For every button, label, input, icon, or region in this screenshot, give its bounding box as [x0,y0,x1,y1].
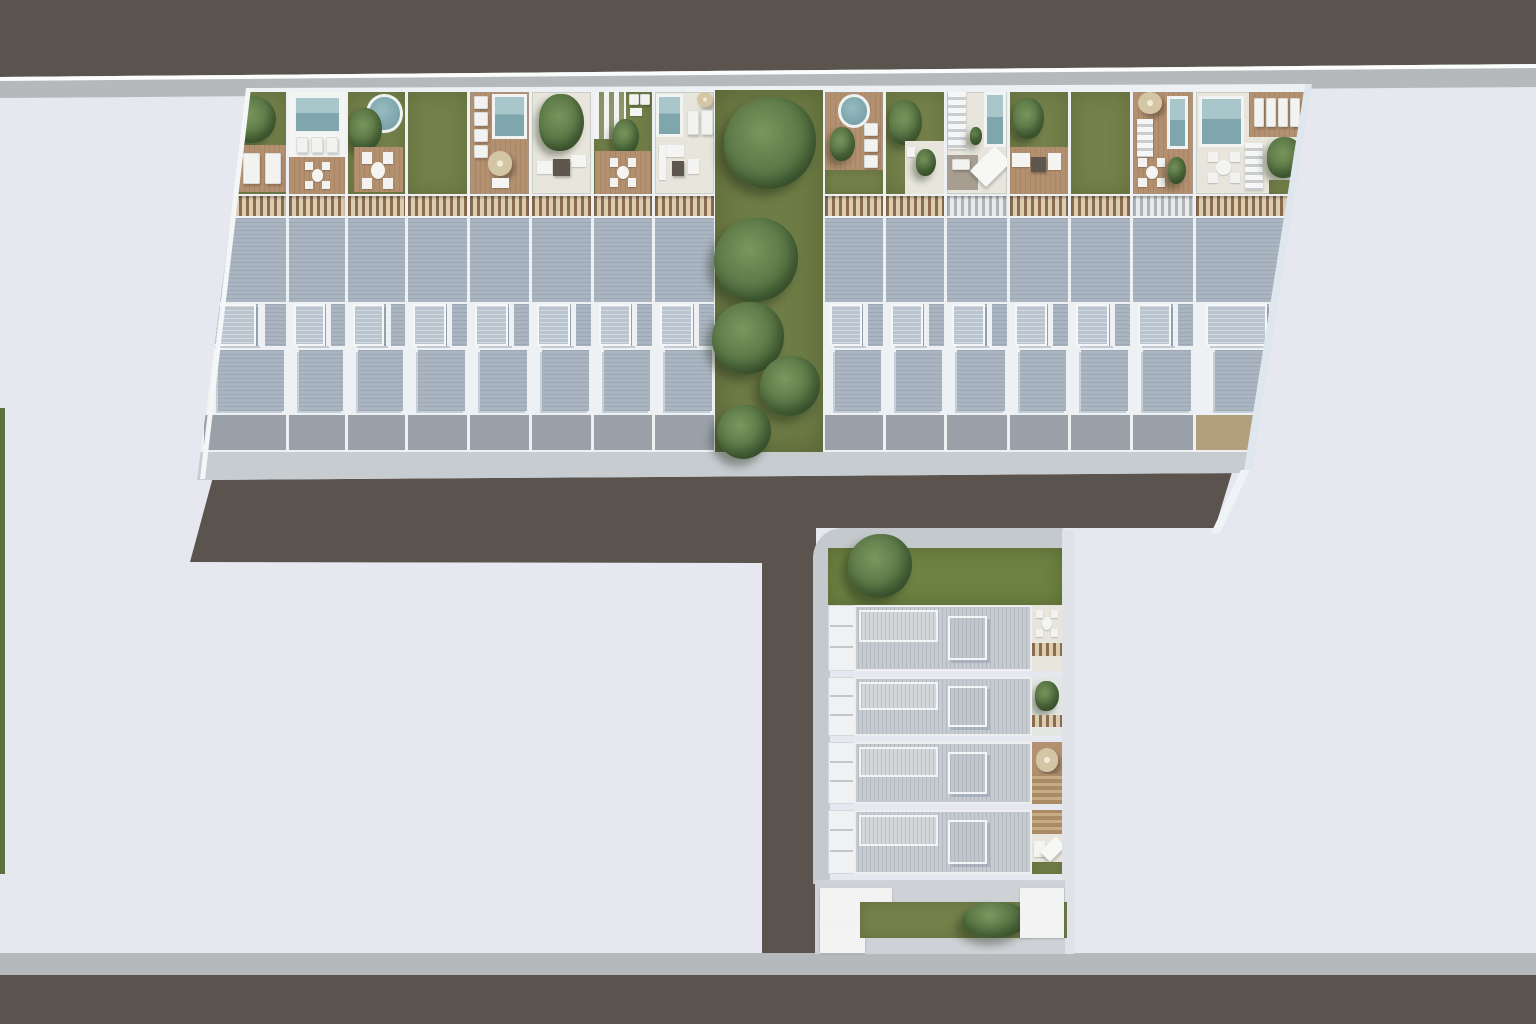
roof-terrace [655,92,714,194]
dining-set [1036,609,1059,638]
secondary-roof-row [947,348,1007,412]
pool [492,94,526,139]
chair [383,152,393,164]
roof-gap [204,304,211,346]
dining-set [609,157,637,188]
white-furniture [630,108,642,116]
skylight-row [1010,304,1068,346]
skylight [353,304,384,346]
skylight [948,686,987,726]
paver-grid [655,415,714,450]
paver-grid [289,415,345,450]
privacy-fence [348,196,405,216]
shrub [970,127,982,145]
sun-lounger [265,153,281,184]
roof-terrace [408,92,467,194]
parasol [488,151,513,175]
secondary-roof [957,350,1005,411]
roof-terrace [1133,92,1193,194]
roof-terrace [886,92,944,194]
skylight-row [348,304,405,346]
skylight [475,304,507,346]
chair [610,178,618,187]
secondary-roof-row [1196,348,1307,412]
secondary-roof [835,350,881,411]
terrace-line [830,850,853,852]
sun-lounger [474,112,488,125]
white-furniture [659,145,666,180]
white-furniture [907,147,915,157]
secondary-roof-row [886,348,944,412]
privacy-fence [289,196,345,216]
parasol [1036,748,1059,772]
dining-set [1138,157,1166,188]
unit-roof [854,742,1032,804]
main-roof [594,216,652,302]
skylight [1138,304,1171,346]
garden-fence [1032,643,1062,656]
privacy-fence [825,196,883,216]
secondary-roof [1081,350,1128,411]
lower-block-building [813,528,1075,956]
paver-grid [594,415,652,450]
secondary-roof-row [470,348,529,412]
entry-volume [820,922,865,953]
secondary-roof [896,350,942,411]
white-furniture [1012,153,1029,167]
roof-terrace [594,92,652,194]
skylight-row [886,304,944,346]
chair [1157,178,1165,187]
unit-roof [854,810,1032,874]
secondary-roof [665,350,712,411]
roof-gap [924,304,929,346]
skylight-row [470,304,529,346]
chair [1051,629,1058,638]
main-roof [655,216,714,302]
outdoor-table [553,159,570,175]
chair [628,178,636,187]
chair [1208,173,1218,183]
roof-gap [447,304,452,346]
upper-roof-panel [859,815,937,846]
secondary-roof-row [1010,348,1068,412]
shrub [1035,681,1059,712]
privacy-fence [532,196,591,216]
white-furniture [688,159,699,173]
main-roof [289,216,345,302]
secondary-roof-row [289,348,345,412]
upper-roof-panel [859,610,937,642]
paver-grid [886,415,944,450]
secondary-roof [418,350,465,411]
skylight-row [204,304,286,346]
sun-lounger [311,137,323,153]
garden-fence [1032,715,1062,727]
sun-lounger [243,153,259,184]
shrub [1013,98,1043,139]
roof-gap [1196,304,1206,346]
dining-set [1207,151,1240,184]
skylight [948,820,987,864]
main-roof [1071,216,1130,302]
secondary-roof-row [532,348,591,412]
terrace-line [830,695,853,697]
pool [984,92,1006,147]
tree [724,97,816,189]
roof-gap [1048,304,1053,346]
skylight-row [408,304,467,346]
roof-terrace [1071,92,1130,194]
chair [322,162,330,171]
roof-gap [258,304,265,346]
secondary-roof-row [1071,348,1130,412]
shrub [349,108,382,151]
roof-terrace [348,92,405,194]
main-roof [204,216,286,302]
privacy-fence [1133,196,1193,216]
secondary-roof-row [348,348,405,412]
privacy-fence [655,196,714,216]
skylight-row [947,304,1007,346]
lawn-patch [825,170,883,194]
privacy-fence [204,196,286,216]
chair [383,178,393,190]
white-furniture [492,178,509,188]
green-verge-left [0,408,5,874]
shrub [539,94,584,151]
roof-gap [1173,304,1178,346]
roof-gap [509,304,514,346]
secondary-roof [542,350,589,411]
skylight-row [825,304,883,346]
pool [1167,96,1189,149]
outdoor-table [672,161,685,175]
chair [1036,629,1043,638]
chair [1036,610,1043,619]
parasol [1138,92,1162,114]
roof-terrace [947,92,1007,194]
roof-terrace [532,92,591,194]
paver-grid [348,415,405,450]
wood-slats [1032,774,1062,804]
terrace-line [830,829,853,831]
skylight [952,304,985,346]
secondary-roof [1020,350,1066,411]
skylight [1015,304,1047,346]
chair [322,181,330,190]
outdoor-table [1031,157,1046,171]
skylight-row [532,304,591,346]
roof-gap [326,304,331,346]
main-roof [1010,216,1068,302]
secondary-roof [604,350,650,411]
secondary-roof-row [1133,348,1193,412]
skylight [294,304,325,346]
paver-grid [1133,415,1193,450]
sun-lounger [1266,98,1276,127]
shrub [916,149,936,176]
pool [293,95,341,134]
shrub [889,100,921,145]
sun-lounger [629,94,639,105]
privacy-fence [1071,196,1130,216]
shrub [613,119,640,156]
wood-slats [1032,810,1062,834]
shrub [830,127,856,162]
skylight [599,304,631,346]
main-roof [532,216,591,302]
main-roof [408,216,467,302]
tree [714,218,798,302]
paver-grid [470,415,529,450]
upper-roof-panel [859,747,937,777]
skylight-row [1071,304,1130,346]
entry-volume [1020,888,1064,938]
steps [1245,143,1263,190]
road-bottom [0,975,1536,1024]
white-furniture [571,155,586,167]
sun-lounger [1278,98,1288,127]
paver-grid [532,415,591,450]
central-green-strip [715,90,823,452]
terrace-line [830,780,853,782]
main-roof [348,216,405,302]
chair [1138,178,1146,187]
main-roof [886,216,944,302]
rear-garden [1032,677,1062,736]
dining-set [362,151,394,190]
dining-set [305,161,331,190]
skylight [1206,304,1267,346]
secondary-roof-row [408,348,467,412]
unit-roof [854,605,1032,671]
shrub [229,96,277,143]
main-roof [947,216,1007,302]
tree [760,356,820,416]
site-plan-render [0,0,1536,1024]
terrace-line [830,714,853,716]
privacy-fence [408,196,467,216]
sun-lounger [1290,98,1300,127]
roof-gap [1110,304,1115,346]
main-roof [1196,216,1307,302]
main-roof [1133,216,1193,302]
paver-grid [947,415,1007,450]
chair [1230,173,1240,183]
secondary-roof [358,350,404,411]
secondary-roof [218,350,284,411]
roof-gap [571,304,576,346]
sun-lounger [701,110,713,134]
secondary-roof-row [825,348,883,412]
parasol [697,92,712,107]
privacy-fence [594,196,652,216]
tree [848,534,912,598]
lower-block-green-band [828,548,1062,605]
paver-grid [1010,415,1068,450]
chair [628,158,636,167]
entry-terrace [828,677,855,736]
secondary-roof-row [655,348,714,412]
skylight [1076,304,1108,346]
rear-garden [1032,605,1062,671]
secondary-roof-row [594,348,652,412]
roof-terrace [289,92,345,194]
roof-gap [386,304,391,346]
entry-terrace [828,605,855,671]
tree [717,405,771,459]
lawn-patch [1032,862,1062,874]
skylight [948,752,987,794]
main-roof [825,216,883,302]
terrace-line [830,625,853,627]
skylight [830,304,862,346]
upper-roof-panel [859,682,937,710]
shrub [1168,157,1186,184]
paver-grid [825,415,883,450]
skylight-row [594,304,652,346]
table [371,162,385,179]
rear-garden [1032,742,1062,804]
unit-roof [854,677,1032,736]
privacy-fence [947,196,1007,216]
chair [1138,158,1146,167]
skylight-row [1196,304,1307,346]
pool [1199,96,1243,147]
chair [1051,610,1058,619]
chair [1208,152,1218,162]
skylight [413,304,445,346]
roof-gap [987,304,992,346]
secondary-roof [480,350,527,411]
sidewalk-bottom [0,953,1536,975]
main-roof [470,216,529,302]
roof-gap [632,304,637,346]
sun-lounger [864,139,878,152]
roof-terrace [825,92,883,194]
pool [656,94,683,137]
roof-gap [863,304,868,346]
entry-terrace [828,810,855,874]
privacy-fence [886,196,944,216]
chair [1157,158,1165,167]
sun-lounger [474,96,488,109]
chair [362,152,372,164]
roof-terrace [1010,92,1068,194]
secondary-roof [1143,350,1191,411]
townhouse-row-building [190,82,1316,482]
secondary-roof [299,350,344,411]
lower-block-forecourt [815,880,1065,954]
sun-lounger [640,94,650,105]
skylight-row [1133,304,1193,346]
steps [948,92,966,149]
rear-garden [1032,810,1062,874]
skylight-row [289,304,345,346]
sun-lounger [864,155,878,168]
paver-grid [204,415,286,450]
skylight-row [655,304,714,346]
sun-lounger [474,145,488,158]
white-furniture [1048,153,1061,169]
privacy-fence [1010,196,1068,216]
sun-lounger [864,123,878,136]
skylight [891,304,923,346]
sun-lounger [687,110,699,134]
chair [1230,152,1240,162]
sun-lounger [326,137,338,153]
sun-lounger [952,159,970,169]
paver-grid [408,415,467,450]
sun-lounger [474,129,488,142]
paver-grid [1071,415,1130,450]
terrace-line [830,761,853,763]
sun-lounger [1254,98,1264,127]
white-furniture [537,161,552,173]
privacy-fence [470,196,529,216]
chair [610,158,618,167]
entry-terrace [828,742,855,804]
chair [305,162,313,171]
skylight [948,616,987,661]
chair [362,178,372,190]
terrace-line [830,646,853,648]
skylight [537,304,569,346]
skylight [660,304,692,346]
sun-lounger [296,137,308,153]
chair [305,181,313,190]
steps [1137,119,1154,158]
roof-terrace [470,92,529,194]
roof-gap [694,304,699,346]
